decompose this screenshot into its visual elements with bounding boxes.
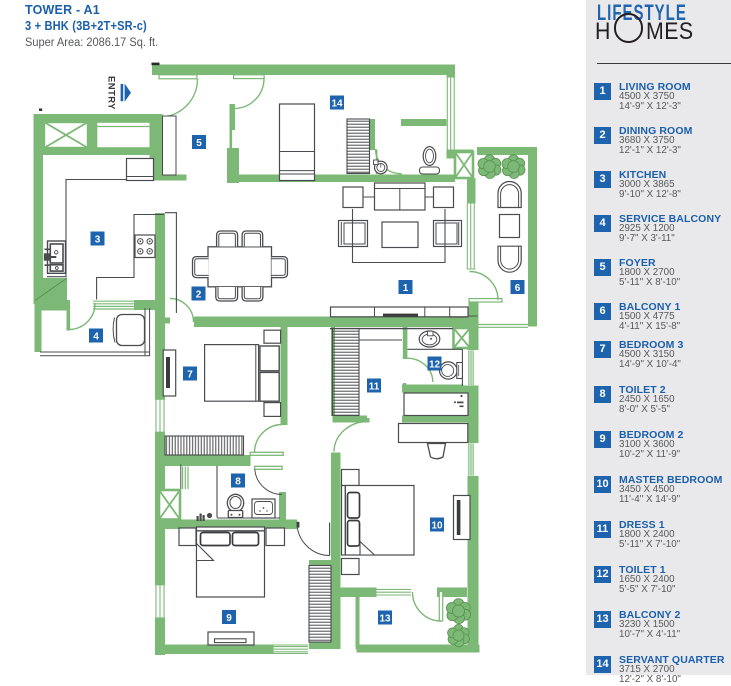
svg-text:5: 5 — [196, 138, 202, 149]
svg-text:ENTRY: ENTRY — [106, 76, 117, 110]
svg-text:13: 13 — [379, 613, 391, 624]
svg-text:1: 1 — [403, 283, 409, 294]
svg-text:4: 4 — [93, 331, 99, 342]
svg-text:11: 11 — [369, 381, 380, 392]
svg-text:10: 10 — [431, 520, 443, 531]
svg-text:12: 12 — [429, 359, 441, 370]
svg-text:9: 9 — [226, 613, 232, 624]
svg-text:14: 14 — [331, 98, 343, 109]
svg-text:2: 2 — [196, 289, 202, 300]
svg-text:6: 6 — [515, 283, 521, 294]
svg-text:7: 7 — [187, 369, 193, 380]
svg-text:3: 3 — [95, 234, 101, 245]
svg-text:8: 8 — [235, 476, 241, 487]
